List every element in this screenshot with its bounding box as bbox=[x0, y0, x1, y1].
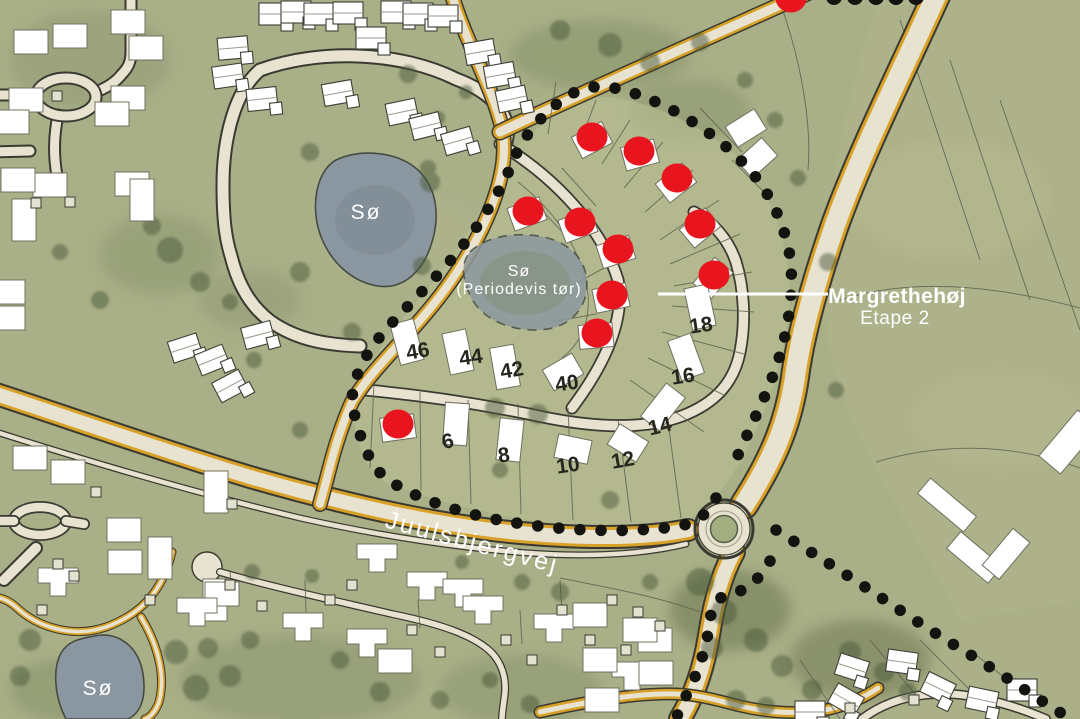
sold-plot-marker[interactable] bbox=[383, 410, 414, 439]
plot-number[interactable]: 42 bbox=[498, 357, 525, 385]
plot-number[interactable]: 10 bbox=[555, 452, 581, 479]
sold-plot-marker[interactable] bbox=[685, 210, 716, 239]
sold-plot-marker[interactable] bbox=[662, 164, 693, 193]
lake-seasonal-line2: (Periodevis tør) bbox=[456, 281, 581, 299]
sold-plot-marker[interactable] bbox=[624, 137, 655, 166]
roundabout bbox=[695, 500, 753, 558]
sold-plot-marker[interactable] bbox=[513, 197, 544, 226]
lake-seasonal-line1: Sø bbox=[456, 263, 581, 281]
sold-plot-marker[interactable] bbox=[699, 261, 730, 290]
plot-number[interactable]: 46 bbox=[404, 338, 431, 366]
plot-number[interactable]: 44 bbox=[458, 344, 484, 371]
plot-number[interactable]: 18 bbox=[688, 312, 714, 339]
plot-number[interactable]: 40 bbox=[554, 370, 580, 397]
map-artwork bbox=[0, 0, 1080, 719]
sold-plot-marker[interactable] bbox=[603, 235, 634, 264]
lake-seasonal-label: Sø (Periodevis tør) bbox=[456, 263, 581, 299]
sold-plot-marker[interactable] bbox=[565, 208, 596, 237]
lake-bottom-label: Sø bbox=[83, 677, 114, 701]
site-plan-map: Sø Sø (Periodevis tør) Sø Juulsbjergvej … bbox=[0, 0, 1080, 719]
sold-plot-marker[interactable] bbox=[577, 123, 608, 152]
lake-top-label: Sø bbox=[351, 201, 382, 225]
plot-number[interactable]: 12 bbox=[609, 447, 636, 475]
plot-number[interactable]: 16 bbox=[670, 363, 696, 390]
development-stage: Etape 2 bbox=[860, 308, 930, 330]
development-title: Margrethehøj bbox=[828, 285, 966, 309]
sold-plot-marker[interactable] bbox=[582, 319, 613, 348]
sold-plot-marker[interactable] bbox=[597, 281, 628, 310]
